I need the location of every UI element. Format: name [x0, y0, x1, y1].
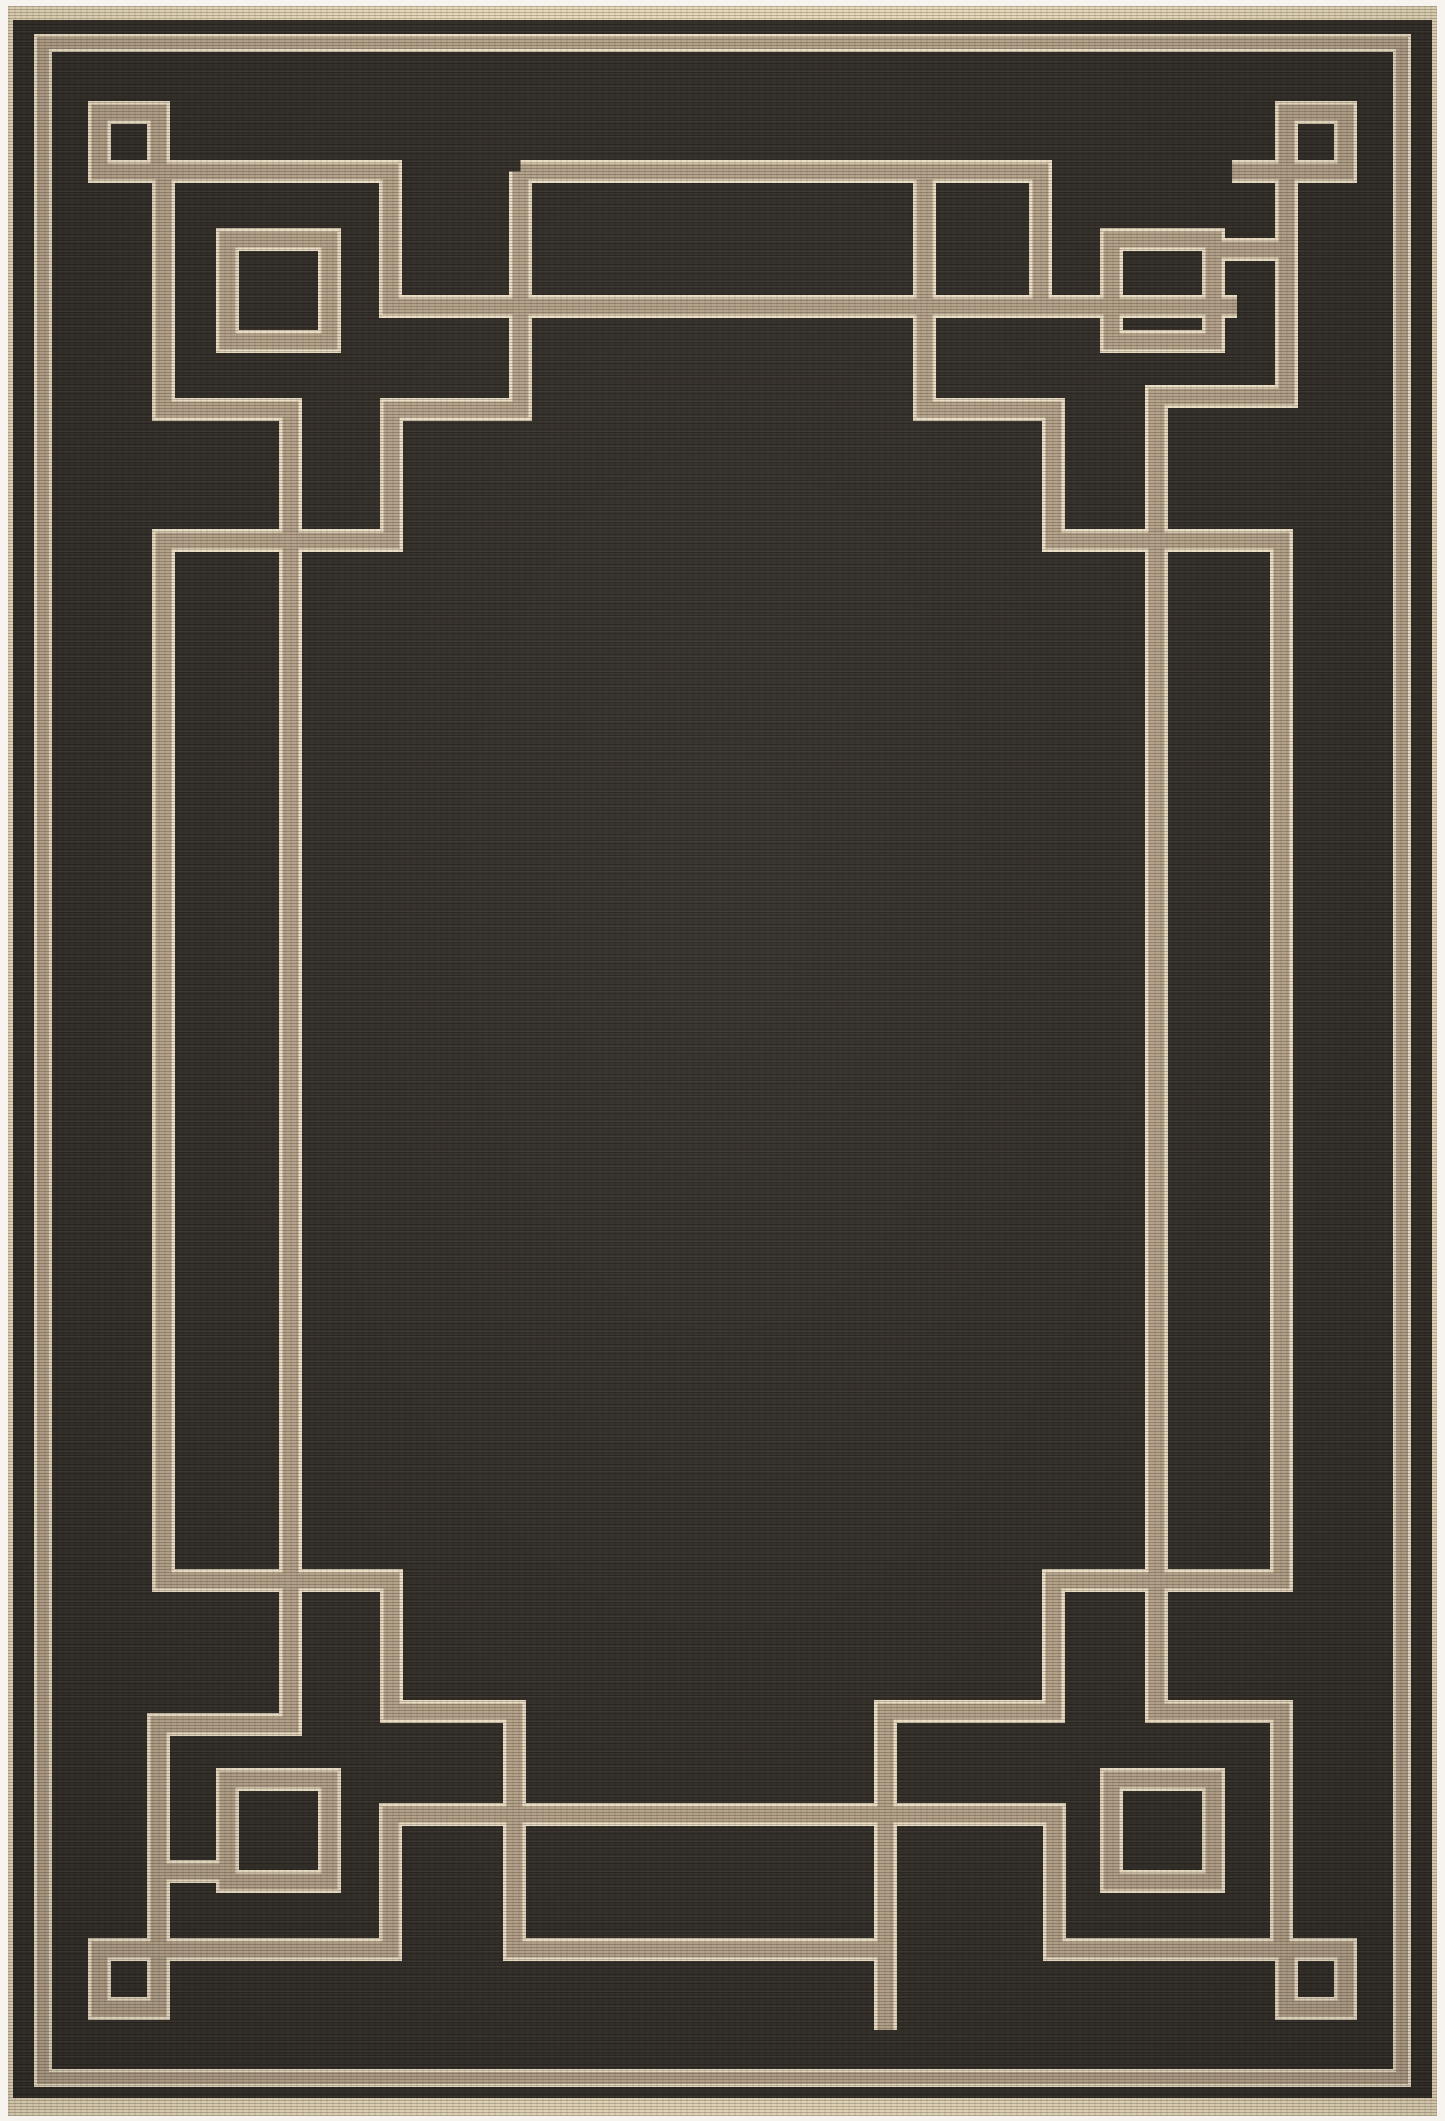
fret-right-rail: [1157, 172, 1287, 1950]
fret-left-rail-edge: [159, 172, 291, 1950]
fret-left-rail: [159, 172, 291, 1950]
photo-backdrop: [0, 0, 1445, 2121]
fret-right-interlock-edge: [886, 172, 1282, 1956]
rug-photo: [8, 6, 1437, 2116]
ring-motif-br: [1112, 1780, 1214, 1882]
fret-right-interlock: [886, 172, 1282, 1956]
fret-left-interlock-edge: [164, 172, 886, 2031]
ring-motif-bl: [228, 1780, 330, 1882]
ring-motif-bl-edge: [228, 1780, 330, 1882]
rug-border-pattern: [0, 0, 1445, 2121]
fret-top-bar-edge: [521, 172, 1041, 307]
fret-top-bar: [521, 172, 1041, 307]
ring-motif-tl-edge: [228, 240, 330, 342]
ring-motif-tl: [228, 240, 330, 342]
ring-motif-br-edge: [1112, 1780, 1214, 1882]
fret-right-rail-edge: [1157, 172, 1287, 1950]
ring-motif-tr: [1112, 240, 1214, 342]
ring-motif-tr-edge: [1112, 240, 1214, 342]
